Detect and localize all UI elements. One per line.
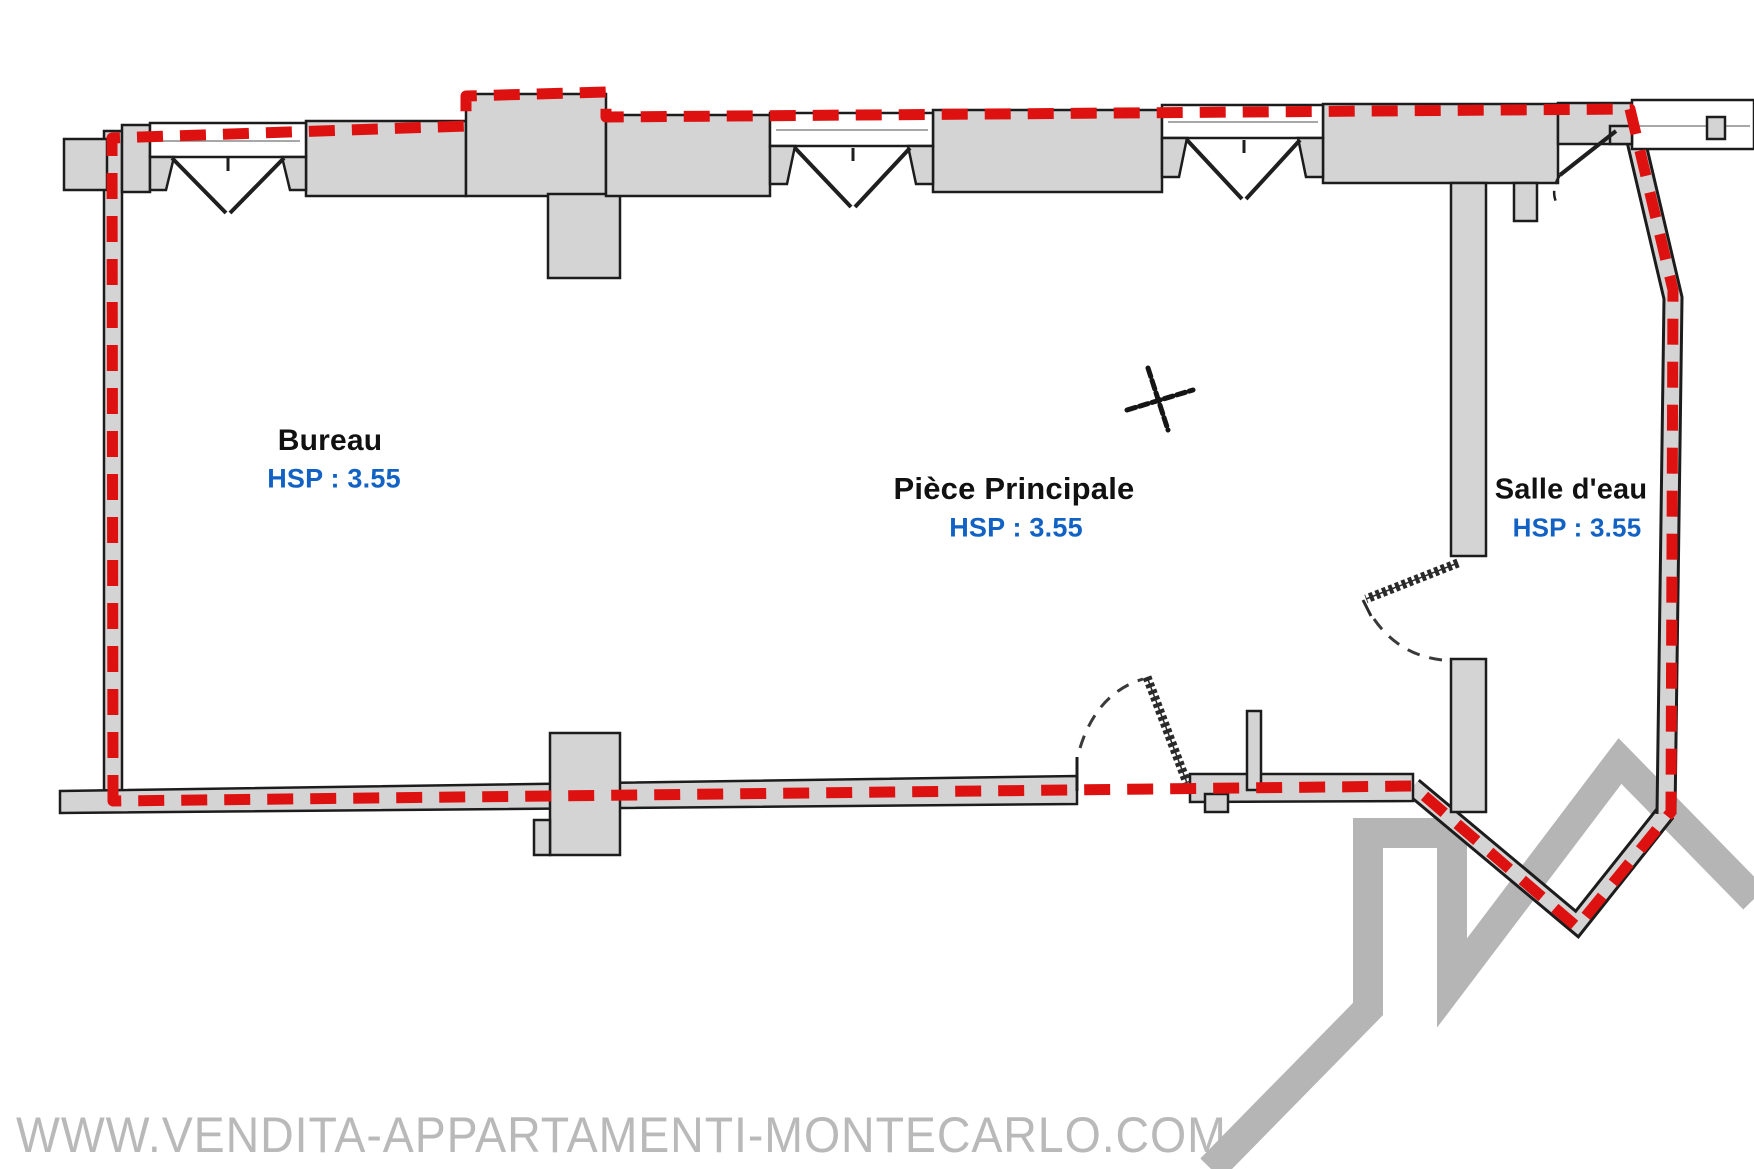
center-cross-mark [1127, 368, 1193, 430]
doors [1077, 368, 1458, 791]
agency-house-logo-icon [1211, 761, 1754, 1169]
room-hsp-bureau: HSP : 3.55 [267, 464, 401, 495]
floor-plan-drawing [0, 0, 1754, 1169]
wall-top-d [933, 110, 1162, 192]
bathroom-door-symbol [1363, 563, 1458, 660]
wall-entrance-stub [1247, 711, 1261, 790]
window-symbol-2 [770, 113, 933, 207]
wall-entrance-block [1205, 794, 1228, 812]
wall-pillar-bottom-step [534, 820, 550, 855]
wall-partition-upper [1451, 183, 1486, 556]
wall-top-chimney-bump [466, 94, 606, 196]
room-hsp-salle-deau: HSP : 3.55 [1513, 513, 1642, 544]
room-hsp-piece-principale: HSP : 3.55 [949, 513, 1083, 544]
entrance-door-symbol [1077, 677, 1187, 791]
wall-top-c [606, 115, 770, 196]
floor-plan-page: WWW.VENDITA-APPARTAMENTI-MONTECARLO.COM [0, 0, 1754, 1169]
room-label-piece-principale: Pièce Principale [894, 471, 1135, 507]
room-label-bureau: Bureau [278, 424, 383, 458]
wall-pillar-stem-top [548, 194, 620, 278]
wall-partition-step [1514, 183, 1537, 221]
room-label-salle-deau: Salle d'eau [1495, 474, 1648, 507]
wall-partition-lower [1451, 659, 1486, 812]
logo-roofline-2 [1669, 812, 1754, 899]
window-symbol-3 [1162, 105, 1323, 199]
wall-top-left-outside [64, 139, 107, 190]
